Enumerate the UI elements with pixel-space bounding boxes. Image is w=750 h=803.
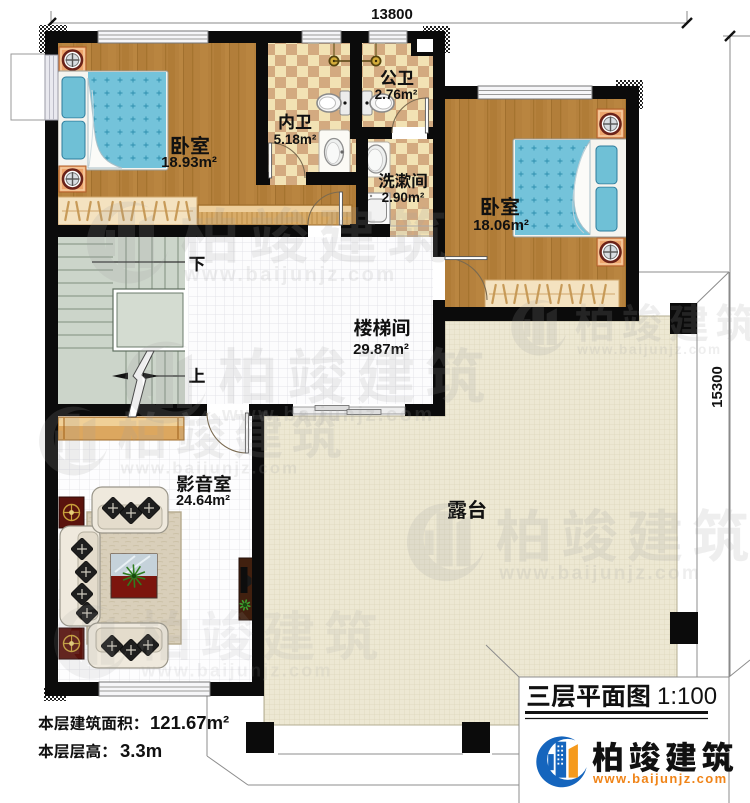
svg-text:13800: 13800 xyxy=(371,6,413,23)
svg-text:18.93m²: 18.93m² xyxy=(161,154,217,171)
svg-text:2.90m²: 2.90m² xyxy=(382,190,425,205)
svg-text:15300: 15300 xyxy=(709,366,726,408)
svg-text:2.76m²: 2.76m² xyxy=(375,87,418,102)
svg-text:18.06m²: 18.06m² xyxy=(473,217,529,234)
svg-text:5.18m²: 5.18m² xyxy=(274,132,317,147)
svg-text:24.64m²: 24.64m² xyxy=(176,493,230,509)
svg-text:1:100: 1:100 xyxy=(657,683,717,710)
svg-text:www.baijunjz.com: www.baijunjz.com xyxy=(592,771,728,786)
svg-text:3.3m: 3.3m xyxy=(120,740,162,761)
svg-text:121.67m²: 121.67m² xyxy=(150,712,229,733)
